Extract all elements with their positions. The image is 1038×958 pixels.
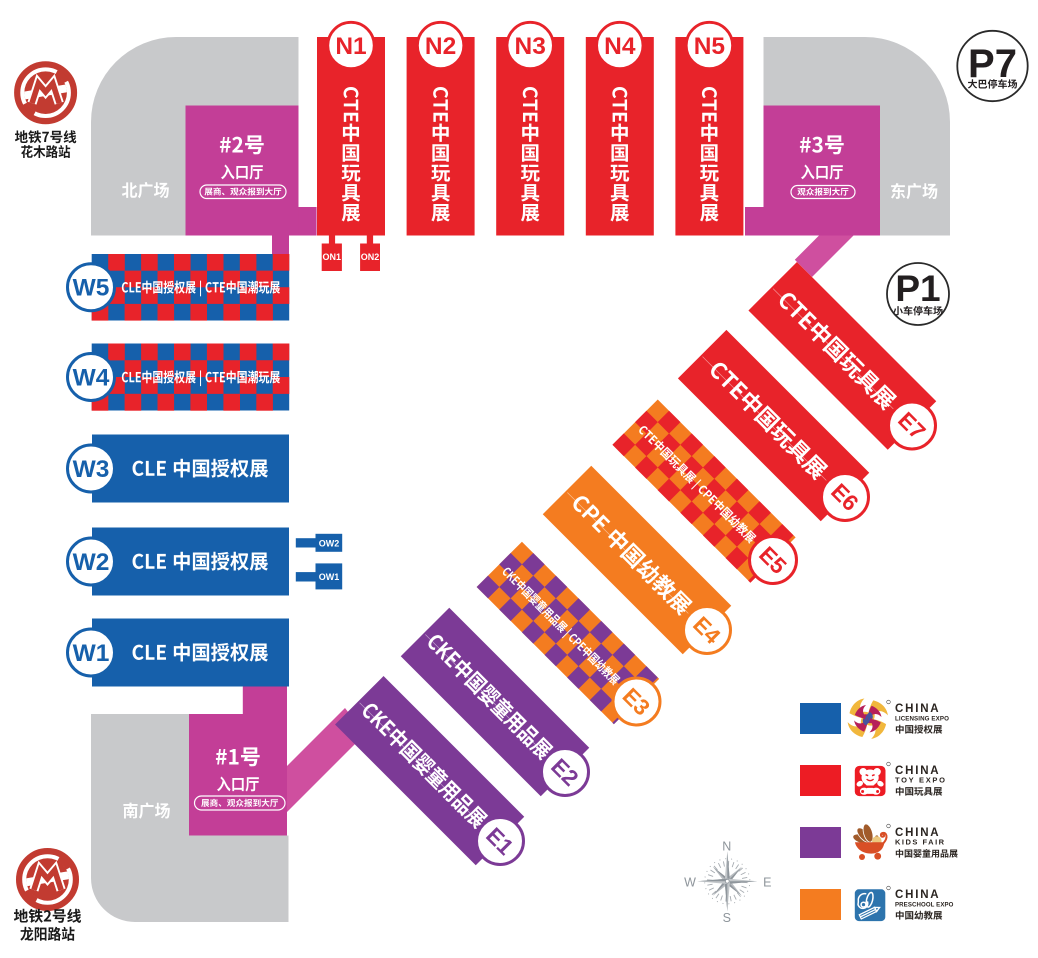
svg-text:LICENSING EXPO: LICENSING EXPO [895,715,949,722]
svg-text:W5: W5 [73,275,110,302]
svg-text:N: N [722,840,731,854]
svg-text:W2: W2 [73,549,110,576]
svg-text:OW2: OW2 [319,538,340,548]
svg-text:CHINA: CHINA [895,703,940,715]
svg-text:PRESCHOOL EXPO: PRESCHOOL EXPO [895,901,954,908]
svg-text:E: E [763,875,771,889]
svg-text:KIDS FAIR: KIDS FAIR [895,837,946,846]
svg-text:W3: W3 [73,456,110,483]
svg-text:N5: N5 [694,33,725,60]
svg-text:TOY EXPO: TOY EXPO [895,775,947,784]
svg-text:OW1: OW1 [319,572,340,582]
svg-text:W4: W4 [73,364,110,391]
svg-text:N1: N1 [335,33,366,60]
svg-text:W1: W1 [73,640,110,667]
svg-text:CHINA: CHINA [895,889,940,901]
svg-text:N3: N3 [515,33,546,60]
svg-text:N2: N2 [425,33,456,60]
svg-text:P1: P1 [895,268,940,309]
svg-text:ON2: ON2 [361,252,380,262]
svg-text:S: S [723,911,731,925]
svg-text:N4: N4 [604,33,636,60]
svg-text:W: W [684,875,696,889]
svg-text:ON1: ON1 [323,252,342,262]
